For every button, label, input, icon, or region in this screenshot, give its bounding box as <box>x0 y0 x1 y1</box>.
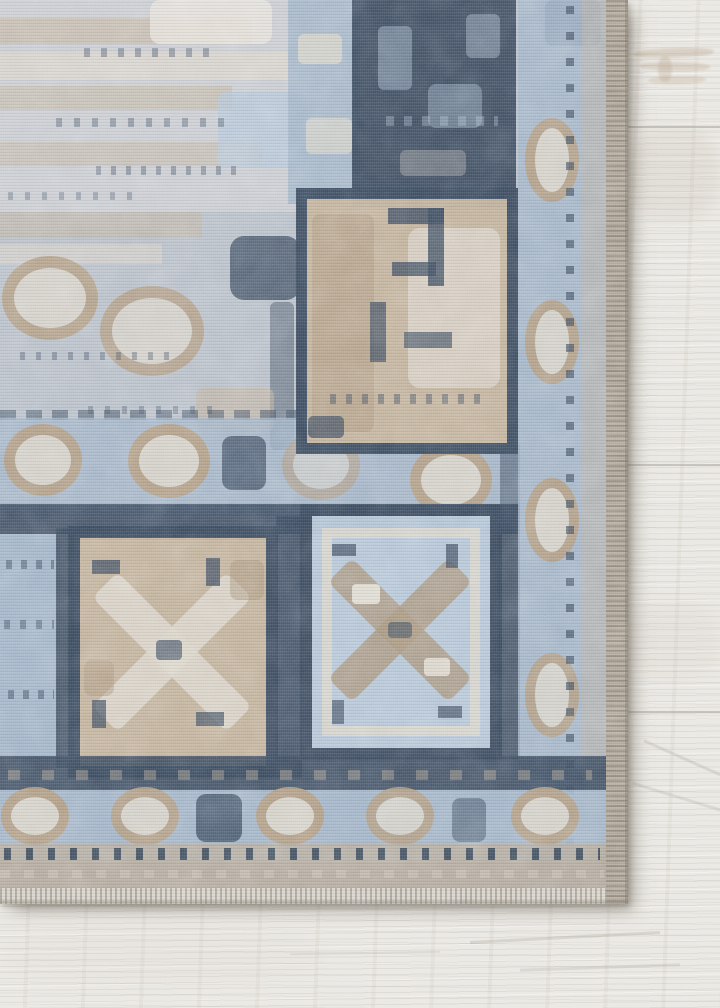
medallion <box>282 430 360 500</box>
field-stripe <box>0 86 232 110</box>
medallion-band <box>0 418 520 516</box>
grid-line-vertical <box>498 504 520 760</box>
medallion <box>410 444 492 516</box>
field-stripe <box>0 244 162 264</box>
navy-blob <box>230 236 300 300</box>
grid-line-vertical <box>56 528 74 768</box>
field-stripe <box>0 52 292 80</box>
grid-line-vertical <box>276 516 302 778</box>
panel-speckles <box>330 394 480 404</box>
top-blue-strip <box>288 0 358 204</box>
panel-left-speckles <box>4 620 54 629</box>
plank-seam <box>626 711 720 713</box>
outer-band-texture <box>0 870 604 878</box>
panel-tan-blob <box>84 660 114 696</box>
motif-hook <box>332 700 344 724</box>
motif-hook <box>438 706 462 718</box>
navy-block-motif <box>466 14 500 58</box>
plank-seam <box>626 464 720 466</box>
wood-knot-stroke <box>640 61 710 71</box>
grid-band <box>0 504 520 534</box>
wood-grain-streak <box>520 963 680 972</box>
faded-ring <box>100 286 204 376</box>
dark-smudge <box>222 436 266 490</box>
panel-left-speckles <box>8 690 54 699</box>
edge-shadow-line-bottom <box>0 900 628 904</box>
field-stripe <box>0 18 252 44</box>
wood-grain-streak <box>632 782 720 818</box>
photo-scene <box>0 0 720 1008</box>
panel-motif <box>392 262 436 276</box>
navy-block-motif <box>378 26 412 90</box>
field-speckles <box>84 48 214 57</box>
panel-motif <box>370 302 386 362</box>
navy-band-ticks <box>8 770 592 780</box>
wood-grain-streak <box>470 931 660 944</box>
strip-motif <box>298 34 342 64</box>
field-top <box>0 0 352 212</box>
field-speckles <box>96 166 246 175</box>
navy-block-distress <box>386 116 498 126</box>
band-top-line <box>0 410 300 420</box>
bottom-dash-strip <box>0 844 606 864</box>
medallion <box>511 787 579 845</box>
border-oval <box>525 653 579 737</box>
wood-knot-stroke <box>658 56 672 82</box>
motif-hook <box>92 560 120 574</box>
grid-line-vertical <box>500 444 520 506</box>
bottom-blue-band <box>0 790 606 846</box>
panel-motif <box>404 332 452 348</box>
navy-block-motif <box>400 150 466 176</box>
edge-gutter <box>582 0 608 903</box>
floor-shading-patch <box>628 128 720 220</box>
plank-seam <box>626 126 720 128</box>
medallion <box>1 787 69 845</box>
field-speckles <box>56 118 226 127</box>
panel-cream-patch <box>408 228 500 388</box>
border-oval <box>525 478 579 562</box>
serge-edge-right <box>606 0 628 904</box>
panel-beige-x <box>68 526 278 778</box>
x-motif-bar <box>328 558 472 702</box>
navy-block <box>352 0 516 208</box>
panel-tan-blob <box>230 560 264 600</box>
field-speckles <box>20 352 170 360</box>
motif-hook <box>446 544 458 568</box>
border-oval <box>525 300 579 384</box>
x-motif-bar <box>92 572 252 732</box>
beige-panel <box>296 188 518 454</box>
motif-hook <box>92 700 106 728</box>
dark-smudge <box>452 798 486 842</box>
rug <box>0 0 628 904</box>
navy-streak <box>270 302 294 450</box>
motif-accent <box>424 658 450 676</box>
panel-blue-x <box>300 504 502 760</box>
faded-ring <box>2 256 98 340</box>
medallion <box>128 424 210 498</box>
medallion <box>4 424 82 496</box>
panel-motif <box>428 208 444 286</box>
field-speckles <box>8 192 138 200</box>
motif-accent <box>352 584 380 604</box>
field-speckles <box>88 406 218 414</box>
panel-left-speckles <box>6 560 54 569</box>
medallion <box>256 787 324 845</box>
field-stripe <box>0 212 202 238</box>
x-motif-bar <box>92 572 252 732</box>
dark-smudge <box>196 794 242 842</box>
bottom-fringe-edge <box>0 888 606 904</box>
x-motif-bar <box>328 558 472 702</box>
motif-hook <box>196 712 224 726</box>
motif-center <box>156 640 182 660</box>
strip-motif <box>306 118 352 154</box>
floor-shading-patch <box>628 600 720 680</box>
panel-inner-frame <box>322 528 480 736</box>
motif-center <box>388 622 412 638</box>
border-oval <box>525 118 579 202</box>
medallion <box>111 787 179 845</box>
panel-blob <box>308 416 344 438</box>
navy-block-motif <box>428 84 482 128</box>
panel-motif <box>388 208 444 224</box>
bottom-dash-row <box>4 848 600 860</box>
border-dash-column <box>566 6 574 890</box>
medallion <box>366 787 434 845</box>
panel-tan-column <box>312 214 374 432</box>
wood-knot-stroke <box>648 75 706 84</box>
bottom-navy-band <box>0 756 606 790</box>
panel-left <box>0 534 60 760</box>
navy-patch <box>545 0 601 46</box>
wood-knot-stroke <box>634 47 714 60</box>
motif-hook <box>332 544 356 556</box>
field-patch <box>218 92 306 168</box>
right-border-band <box>518 0 606 903</box>
motif-hook <box>206 558 220 586</box>
field-patch <box>150 0 272 44</box>
field-patch <box>196 388 274 432</box>
floor-shading-patch <box>0 928 320 984</box>
wood-grain-streak <box>643 739 720 779</box>
edge-shadow-line-right <box>625 0 628 904</box>
bottom-outer-band <box>0 862 606 892</box>
field-stripe <box>0 142 262 166</box>
